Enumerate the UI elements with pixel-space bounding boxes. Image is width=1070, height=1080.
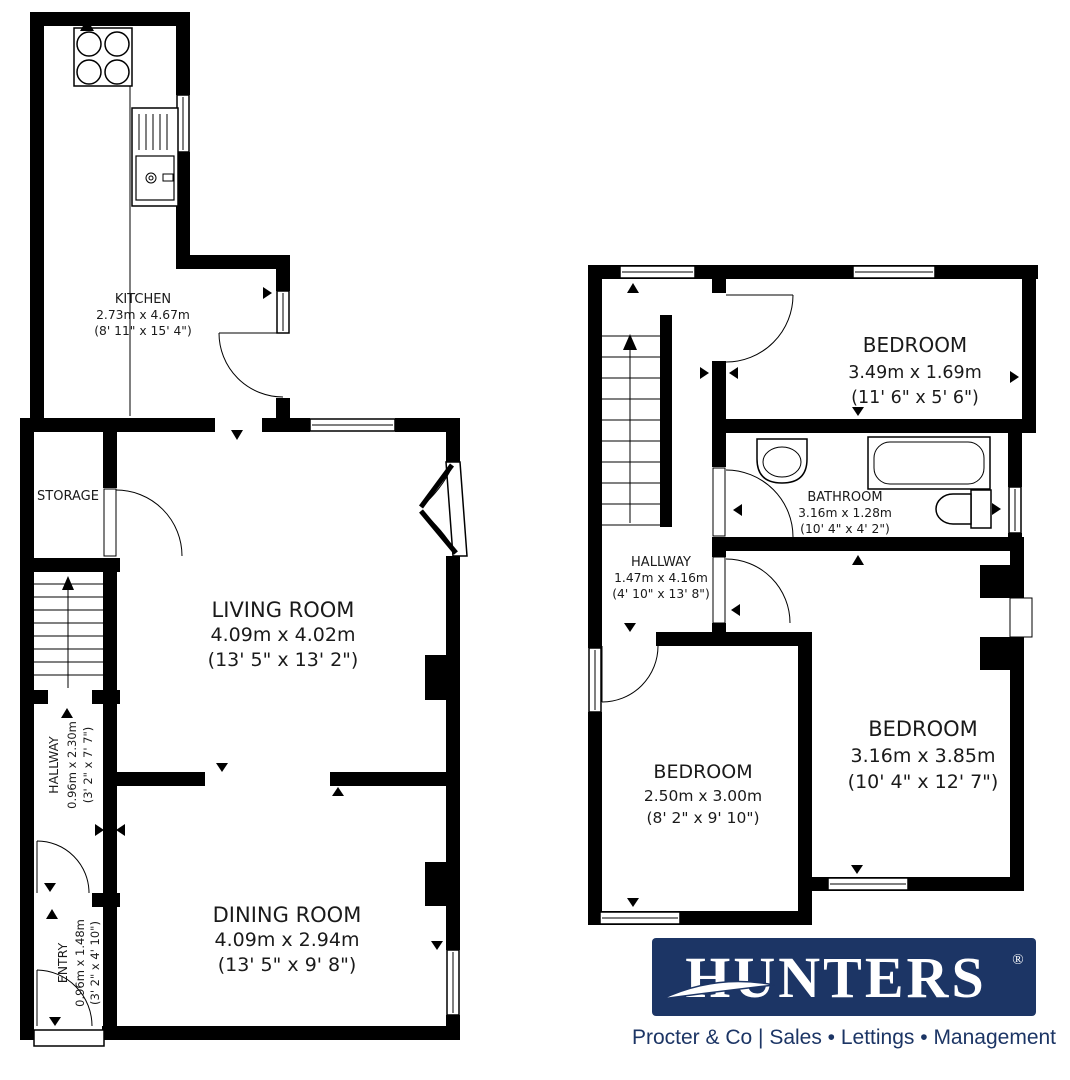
first-hallway-imperial: (4' 10" x 13' 8") [612,587,710,601]
bathroom-window [1009,487,1021,533]
rear-bedroom-metric: 3.16m x 3.85m [851,745,996,767]
bathtub [868,437,990,489]
living-room-window [310,419,395,431]
front-bedroom-imperial: (11' 6" x 5' 6") [851,388,979,408]
french-doors [421,462,467,556]
kitchen-label: KITCHEN [115,292,171,307]
toilet [936,490,991,528]
bathroom-imperial: (10' 4" x 4' 2") [800,522,890,536]
hallway-metric: 0.96m x 2.30m [65,721,79,809]
dining-room-label: DINING ROOM [213,903,362,927]
dining-room-metric: 4.09m x 2.94m [215,929,360,951]
chimney-recess [1010,598,1032,637]
rear-bedroom-imperial: (10' 4" x 12' 7") [848,771,999,793]
hallway-door [37,841,89,893]
agency-logo: HUNTERS ® Procter & Co | Sales • Letting… [632,938,1056,1049]
ground-walls [20,12,460,1040]
kitchen-back-door [219,333,283,397]
storage-door [104,489,182,556]
middle-bedroom-label: BEDROOM [653,761,752,783]
front-bedroom-window [853,266,935,278]
first-stairs [602,334,660,525]
side-window [589,648,601,712]
ground-floor-plan: KITCHEN 2.73m x 4.67m (8' 11" x 15' 4") … [20,12,467,1046]
rear-bedroom-label: BEDROOM [868,717,978,741]
ground-stairs [34,576,103,688]
entry-label: ENTRY [55,942,70,983]
entry-metric: 0.96m x 1.48m [73,919,87,1007]
middle-bedroom-metric: 2.50m x 3.00m [644,787,762,805]
first-floor-plan: BEDROOM 3.49m x 1.69m (11' 6" x 5' 6") B… [588,265,1038,925]
dining-room-imperial: (13' 5" x 9' 8") [218,954,357,976]
living-room-imperial: (13' 5" x 13' 2") [208,649,359,671]
registered-trademark: ® [1012,952,1023,968]
living-room-label: LIVING ROOM [212,598,355,622]
kitchen-rear-window [277,291,289,333]
middle-bedroom-window [600,912,680,924]
logo-tagline: Procter & Co | Sales • Lettings • Manage… [632,1026,1056,1049]
entry-imperial: (3' 2" x 4' 10") [88,921,102,1005]
hallway-label: HALLWAY [46,736,61,794]
first-hallway-metric: 1.47m x 4.16m [614,571,708,585]
rear-bedroom-door [713,557,790,623]
hallway-imperial: (3' 2" x 7' 7") [81,727,95,804]
first-hallway-label: HALLWAY [631,555,691,570]
kitchen-fixtures [74,28,178,416]
landing-window [620,266,695,278]
bathroom-label: BATHROOM [807,490,882,505]
kitchen-imperial: (8' 11" x 15' 4") [94,324,192,338]
hob [74,28,132,86]
rear-bedroom-window [828,878,908,890]
dining-room-window [447,950,459,1015]
floorplan-page: { "floors": { "ground": { "kitchen": {"n… [0,0,1070,1080]
front-bedroom-label: BEDROOM [863,333,967,357]
front-door-sill [34,1030,104,1046]
sink-unit [132,108,178,206]
kitchen-metric: 2.73m x 4.67m [96,308,190,322]
floorplan-canvas: KITCHEN 2.73m x 4.67m (8' 11" x 15' 4") … [0,0,1070,1080]
front-bedroom-metric: 3.49m x 1.69m [848,363,982,383]
front-bedroom-door [726,295,793,362]
bathroom-sink [757,439,807,483]
logo-wordmark: HUNTERS [685,945,986,1010]
kitchen-window [177,95,189,152]
middle-bedroom-imperial: (8' 2" x 9' 10") [646,809,759,827]
bathroom-metric: 3.16m x 1.28m [798,506,892,520]
middle-bedroom-door [602,646,658,702]
storage-label: STORAGE [37,489,99,504]
living-room-metric: 4.09m x 4.02m [211,624,356,646]
